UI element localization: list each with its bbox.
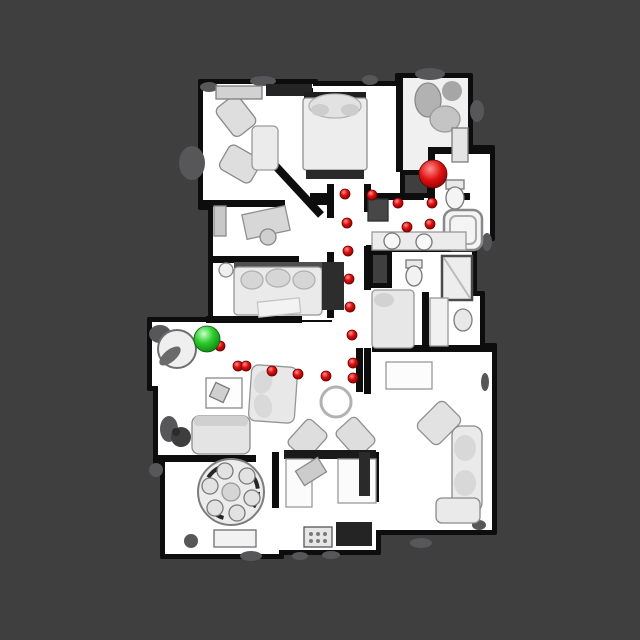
pillow [311, 104, 329, 116]
dining-chair [217, 463, 233, 479]
mesh-noise-blob [470, 100, 484, 122]
path-waypoint-dot [348, 373, 358, 383]
wardrobe [322, 262, 344, 310]
mesh-noise-blob [362, 75, 378, 85]
dining-chair [229, 505, 245, 521]
wall-bedroom-living [206, 316, 302, 323]
wall-hall-right-3 [364, 348, 371, 394]
washer [368, 199, 388, 221]
toilet [446, 187, 464, 209]
dining-chair [202, 478, 218, 494]
dining-chair [244, 490, 260, 506]
wall-hall-left-1 [327, 184, 334, 218]
goal-sphere-marker [419, 160, 447, 188]
pillow [374, 293, 394, 307]
stove-knob [323, 539, 327, 543]
pillow [293, 271, 315, 289]
path-waypoint-dot [347, 330, 357, 340]
path-waypoint-dot [293, 369, 303, 379]
closet-clutter [442, 81, 462, 101]
start-sphere-marker [194, 326, 220, 352]
wall-livingbr-left-1 [356, 348, 363, 392]
cushion [454, 470, 476, 496]
path-waypoint-dot [267, 366, 277, 376]
mesh-noise-blob [410, 538, 432, 548]
pillow [241, 271, 263, 289]
vanity-counter [430, 298, 448, 346]
mesh-noise-blob [200, 82, 218, 92]
mesh-noise-blob [322, 551, 340, 559]
dining-chair [239, 468, 255, 484]
office-chair [260, 229, 276, 245]
cabinet [452, 128, 468, 162]
mesh-noise-blob [184, 534, 198, 548]
wall-dining-kitchen [272, 452, 279, 508]
bed-bench [306, 170, 364, 179]
mesh-noise-blob [149, 463, 163, 477]
kitchen-dark-counter [336, 522, 372, 546]
wall-hall-right-2 [364, 246, 371, 290]
ottoman [321, 387, 351, 417]
console-table [214, 530, 256, 547]
plant [172, 428, 180, 436]
path-waypoint-dot [427, 198, 437, 208]
stove-knob [316, 532, 320, 536]
dining-chair [207, 500, 223, 516]
mesh-noise-blob [481, 373, 489, 391]
path-waypoint-dot [402, 222, 412, 232]
sink [416, 234, 432, 250]
sofa-corner [436, 498, 480, 523]
mesh-noise-blob [240, 551, 262, 561]
kitchen-island [338, 459, 376, 503]
wall-closet-left [396, 78, 403, 172]
nightstand [219, 263, 233, 277]
tv-unit [359, 452, 370, 496]
path-waypoint-dot [241, 361, 251, 371]
stove-knob [316, 539, 320, 543]
path-waypoint-dot [345, 302, 355, 312]
coffee-table [252, 126, 278, 170]
desk [216, 86, 262, 99]
coffee-table [386, 362, 432, 389]
wall-office-bedroom [213, 256, 299, 263]
mesh-noise-blob [179, 146, 205, 180]
stove [304, 527, 332, 547]
path-waypoint-dot [393, 198, 403, 208]
mesh-noise-blob [292, 552, 308, 560]
mesh-noise-blob [482, 233, 492, 251]
path-waypoint-dot [321, 371, 331, 381]
office-shelf [214, 206, 226, 236]
path-waypoint-dot [367, 190, 377, 200]
pillow [266, 269, 290, 287]
dining-table-center [222, 483, 240, 501]
path-waypoint-dot [348, 358, 358, 368]
wall-nook-vanity [422, 292, 429, 350]
path-waypoint-dot [343, 246, 353, 256]
path-waypoint-dot [340, 189, 350, 199]
path-waypoint-dot [344, 274, 354, 284]
path-waypoint-dot [342, 218, 352, 228]
pillow [341, 104, 359, 116]
sofa-back [194, 416, 248, 426]
path-waypoint-dot [425, 219, 435, 229]
stove-knob [309, 539, 313, 543]
stove-knob [309, 532, 313, 536]
wall-bedtop-bottom [310, 193, 334, 200]
scene-viewport[interactable] [0, 0, 640, 640]
toilet [406, 266, 422, 286]
sink [384, 233, 400, 249]
mesh-noise-blob [415, 68, 445, 80]
stove-knob [323, 532, 327, 536]
vanity-sink [454, 309, 472, 331]
scene-viewer-window [0, 0, 640, 640]
cushion [454, 435, 476, 461]
